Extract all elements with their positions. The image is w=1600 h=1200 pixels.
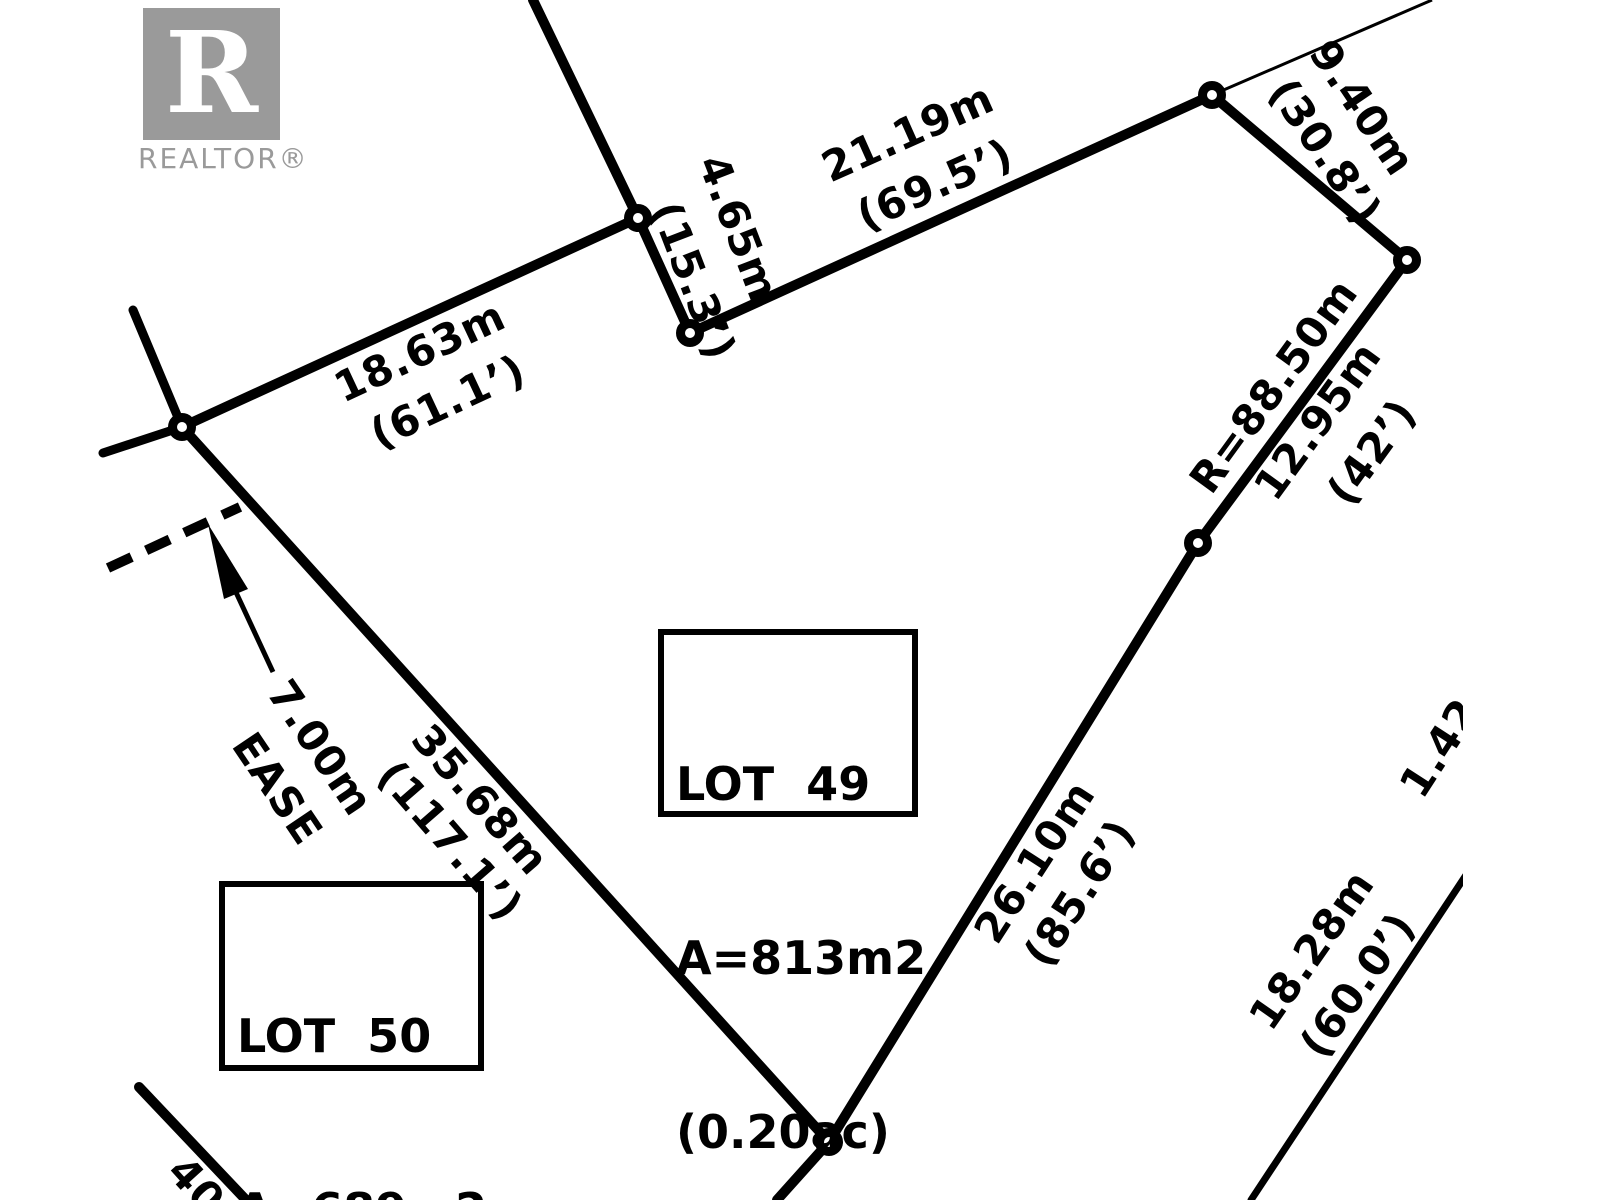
stub-line-up-left	[133, 310, 182, 427]
realtor-logo-r: R	[165, 18, 258, 130]
easement-arrow-shaft	[234, 588, 273, 672]
lot-50-info-box: LOT 50 A=689m2 (0.17ac)	[219, 881, 484, 1071]
realtor-logo-text: REALTOR®	[138, 142, 298, 175]
lot-50-area-m2: A=689m2	[237, 1181, 478, 1200]
survey-monument	[173, 418, 192, 437]
easement-arrow-head	[208, 524, 248, 599]
plan-drawing-area: R REALTOR® LOT 49 A=813m2 (0.20ac) LOT 5…	[0, 0, 1463, 1200]
survey-monument	[1189, 534, 1208, 553]
realtor-logo: R	[143, 8, 280, 140]
lot-49-info-box: LOT 49 A=813m2 (0.20ac)	[658, 629, 918, 817]
lot-49-area-ac: (0.20ac)	[676, 1103, 912, 1161]
survey-plan: R REALTOR® LOT 49 A=813m2 (0.20ac) LOT 5…	[0, 0, 1600, 1200]
lot-50-name: LOT 50	[237, 1007, 478, 1065]
survey-monument	[1203, 86, 1222, 105]
boundary-line-top-entering	[533, 0, 638, 218]
lot-49-area-m2: A=813m2	[676, 929, 912, 987]
lot-49-name: LOT 49	[676, 755, 912, 813]
survey-monument	[1398, 251, 1417, 270]
